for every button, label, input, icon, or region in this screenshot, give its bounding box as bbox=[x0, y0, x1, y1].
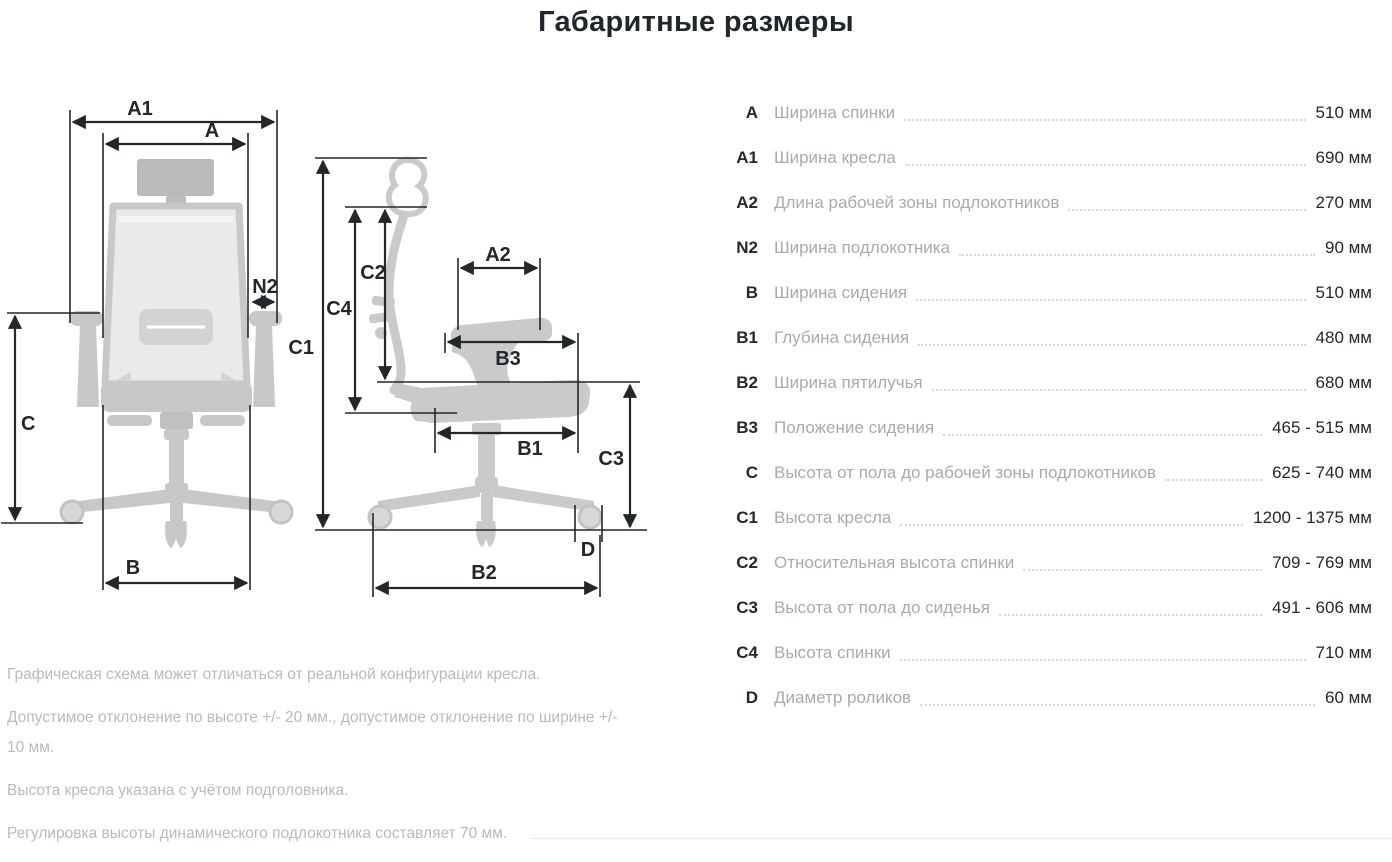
dim-label-c1: C1 bbox=[288, 337, 314, 359]
dim-n2: N2 bbox=[252, 276, 278, 302]
dim-a2: A2 bbox=[458, 244, 540, 330]
dimension-code: C2 bbox=[722, 553, 758, 573]
dim-label-c3: C3 bbox=[598, 448, 624, 470]
dotted-leader bbox=[918, 344, 1305, 346]
dimension-name: Длина рабочей зоны подлокотников bbox=[774, 193, 1059, 213]
front-view-chair bbox=[61, 159, 292, 548]
dimensions-table: A Ширина спинки 510 мм A1 Ширина кресла … bbox=[722, 90, 1372, 720]
table-row: A Ширина спинки 510 мм bbox=[722, 90, 1372, 135]
dim-label-c4: C4 bbox=[326, 298, 352, 320]
dimension-code: C3 bbox=[722, 598, 758, 618]
dimension-name: Положение сидения bbox=[774, 418, 934, 438]
table-row: D Диаметр роликов 60 мм bbox=[722, 675, 1372, 720]
dim-label-b3: B3 bbox=[495, 348, 521, 370]
dotted-leader bbox=[900, 659, 1306, 661]
table-row: B1 Глубина сидения 480 мм bbox=[722, 315, 1372, 360]
dotted-leader bbox=[900, 524, 1243, 526]
dotted-leader bbox=[904, 119, 1305, 121]
dotted-leader bbox=[905, 164, 1306, 166]
section-divider bbox=[531, 838, 1392, 839]
dimension-code: A2 bbox=[722, 193, 758, 213]
dimension-value: 270 мм bbox=[1316, 193, 1372, 213]
dim-label-d: D bbox=[581, 539, 595, 561]
base-leg bbox=[493, 485, 594, 512]
dim-label-n2: N2 bbox=[252, 276, 278, 298]
table-row: B3 Положение сидения 465 - 515 мм bbox=[722, 405, 1372, 450]
note-headrest-height: Высота кресла указана с учётом подголовн… bbox=[7, 776, 629, 806]
dimension-value: 1200 - 1375 мм bbox=[1253, 508, 1372, 528]
headrest bbox=[137, 159, 214, 196]
dimension-value: 480 мм bbox=[1316, 328, 1372, 348]
dimension-name: Ширина спинки bbox=[774, 103, 895, 123]
dimension-name: Глубина сидения bbox=[774, 328, 909, 348]
table-row: C4 Высота спинки 710 мм bbox=[722, 630, 1372, 675]
dimension-value: 90 мм bbox=[1325, 238, 1372, 258]
dimension-value: 60 мм bbox=[1325, 688, 1372, 708]
dotted-leader bbox=[916, 299, 1305, 301]
dimension-code: B3 bbox=[722, 418, 758, 438]
caster bbox=[270, 501, 292, 523]
base-leg bbox=[378, 485, 480, 512]
dimension-code: C1 bbox=[722, 508, 758, 528]
dotted-leader bbox=[1068, 209, 1305, 211]
dimension-value: 510 мм bbox=[1316, 283, 1372, 303]
dimension-code: D bbox=[722, 688, 758, 708]
table-row: C3 Высота от пола до сиденья 491 - 606 м… bbox=[722, 585, 1372, 630]
side-view-chair bbox=[369, 160, 601, 547]
dimension-code: B1 bbox=[722, 328, 758, 348]
side-view-dimensions: C1 C2 C4 A2 B3 B1 bbox=[288, 158, 647, 597]
dimension-code: B bbox=[722, 283, 758, 303]
dimension-value: 690 мм bbox=[1316, 148, 1372, 168]
dimension-code: A bbox=[722, 103, 758, 123]
dotted-leader bbox=[943, 434, 1262, 436]
dimension-name: Высота кресла bbox=[774, 508, 891, 528]
dotted-leader bbox=[1165, 479, 1262, 481]
table-row: C Высота от пола до рабочей зоны подлоко… bbox=[722, 450, 1372, 495]
dimension-name: Ширина сидения bbox=[774, 283, 907, 303]
dimension-value: 710 мм bbox=[1316, 643, 1372, 663]
headrest-side bbox=[389, 160, 426, 214]
note-schema-disclaimer: Графическая схема может отличаться от ре… bbox=[7, 660, 629, 690]
dotted-leader bbox=[920, 704, 1315, 706]
table-row: C1 Высота кресла 1200 - 1375 мм bbox=[722, 495, 1372, 540]
dim-label-b: B bbox=[126, 557, 140, 579]
dimension-name: Высота от пола до сиденья bbox=[774, 598, 990, 618]
caster-fork bbox=[476, 521, 496, 547]
page-title: Габаритные размеры bbox=[0, 0, 1392, 44]
dimension-code: A1 bbox=[722, 148, 758, 168]
dim-c3: C3 bbox=[598, 385, 630, 527]
dimension-name: Диаметр роликов bbox=[774, 688, 911, 708]
caster bbox=[61, 501, 83, 523]
table-row: C2 Относительная высота спинки 709 - 769… bbox=[722, 540, 1372, 585]
table-row: A2 Длина рабочей зоны подлокотников 270 … bbox=[722, 180, 1372, 225]
dimension-name: Ширина подлокотника bbox=[774, 238, 950, 258]
seat bbox=[101, 381, 252, 412]
table-row: A1 Ширина кресла 690 мм bbox=[722, 135, 1372, 180]
dim-label-a1: A1 bbox=[127, 98, 153, 120]
backrest bbox=[105, 206, 247, 384]
dim-label-a2: A2 bbox=[485, 244, 511, 266]
dimension-name: Высота от пола до рабочей зоны подлокотн… bbox=[774, 463, 1156, 483]
dotted-leader bbox=[1023, 569, 1262, 571]
caster-fork bbox=[165, 521, 187, 548]
dim-label-c: C bbox=[21, 413, 35, 435]
dimension-code: N2 bbox=[722, 238, 758, 258]
dimension-code: B2 bbox=[722, 373, 758, 393]
dimension-code: C bbox=[722, 463, 758, 483]
seat-side bbox=[419, 380, 590, 423]
chair-dimensions-diagram: A1 A N2 C B C1 bbox=[0, 85, 660, 620]
table-row: B Ширина сидения 510 мм bbox=[722, 270, 1372, 315]
dimension-name: Относительная высота спинки bbox=[774, 553, 1014, 573]
table-row: B2 Ширина пятилучья 680 мм bbox=[722, 360, 1372, 405]
table-row: N2 Ширина подлокотника 90 мм bbox=[722, 225, 1372, 270]
dimension-value: 465 - 515 мм bbox=[1272, 418, 1372, 438]
dotted-leader bbox=[959, 254, 1315, 256]
note-tolerance: Допустимое отклонение по высоте +/- 20 м… bbox=[7, 703, 629, 763]
caster bbox=[579, 506, 601, 528]
dotted-leader bbox=[932, 389, 1306, 391]
dim-label-c2: C2 bbox=[360, 262, 386, 284]
dimension-code: C4 bbox=[722, 643, 758, 663]
dimension-name: Высота спинки bbox=[774, 643, 891, 663]
dimension-name: Ширина пятилучья bbox=[774, 373, 923, 393]
dim-label-b1: B1 bbox=[517, 438, 543, 460]
dimension-value: 709 - 769 мм bbox=[1272, 553, 1372, 573]
dim-label-b2: B2 bbox=[471, 562, 497, 584]
dimension-value: 491 - 606 мм bbox=[1272, 598, 1372, 618]
dimension-value: 680 мм bbox=[1316, 373, 1372, 393]
dotted-leader bbox=[999, 614, 1262, 616]
dimension-value: 625 - 740 мм bbox=[1272, 463, 1372, 483]
gas-lift bbox=[169, 429, 184, 485]
dimension-name: Ширина кресла bbox=[774, 148, 896, 168]
dim-label-a: A bbox=[205, 120, 219, 142]
note-armrest-adjust: Регулировка высоты динамического подлоко… bbox=[7, 819, 629, 849]
footnotes: Графическая схема может отличаться от ре… bbox=[7, 660, 629, 862]
dimension-value: 510 мм bbox=[1316, 103, 1372, 123]
